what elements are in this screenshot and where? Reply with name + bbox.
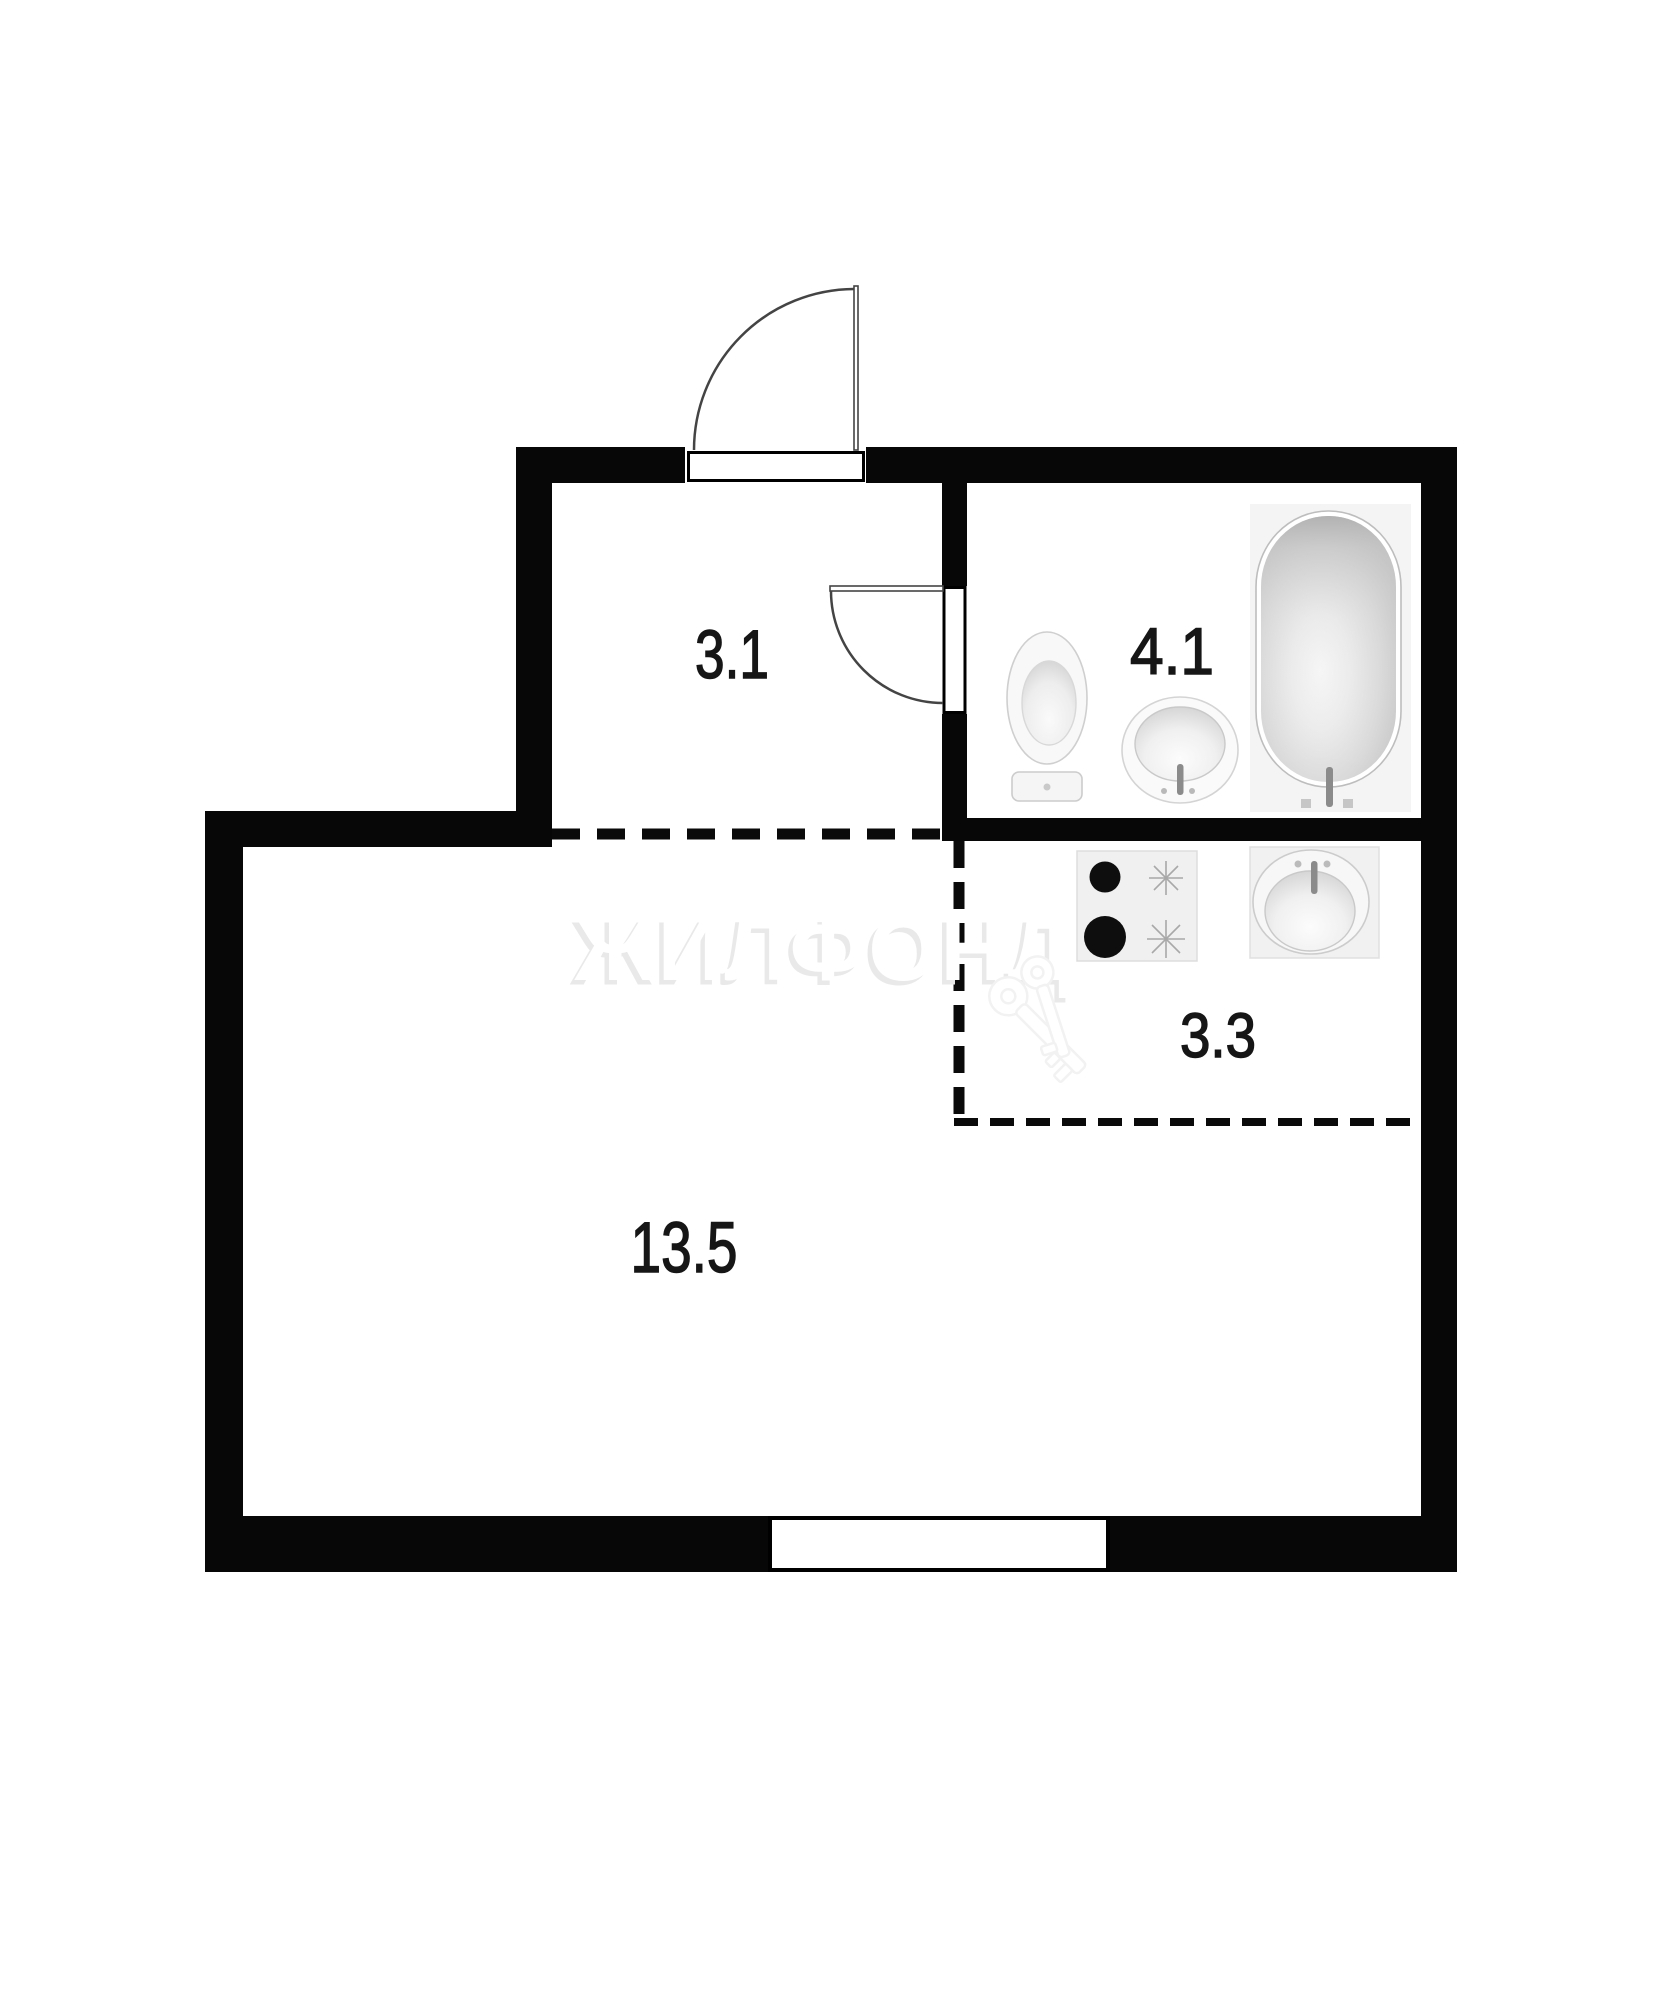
- svg-text:3.3: 3.3: [1180, 1001, 1256, 1071]
- svg-text:13.5: 13.5: [631, 1209, 738, 1288]
- svg-text:4.1: 4.1: [1130, 614, 1214, 688]
- svg-text:3.1: 3.1: [695, 616, 769, 693]
